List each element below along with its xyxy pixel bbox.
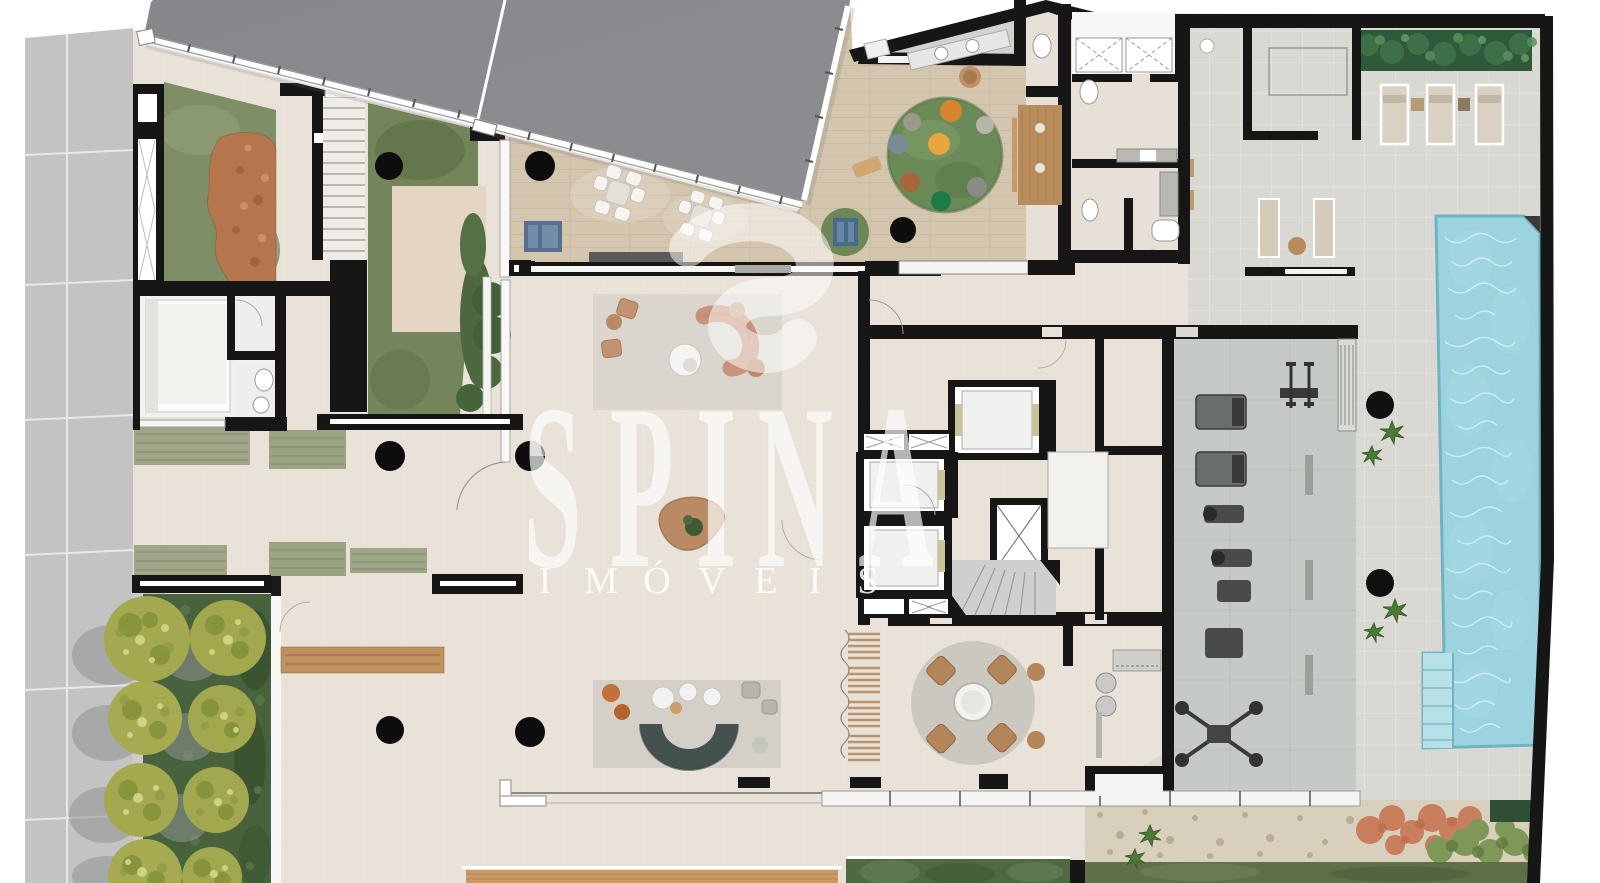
svg-text:Ó: Ó	[643, 560, 670, 602]
svg-text:S: S	[857, 560, 878, 602]
svg-text:I: I	[539, 560, 552, 602]
svg-text:V: V	[698, 560, 726, 602]
svg-text:M: M	[584, 560, 618, 602]
svg-text:S: S	[523, 356, 581, 617]
svg-text:E: E	[754, 560, 777, 602]
svg-text:I: I	[809, 560, 822, 602]
